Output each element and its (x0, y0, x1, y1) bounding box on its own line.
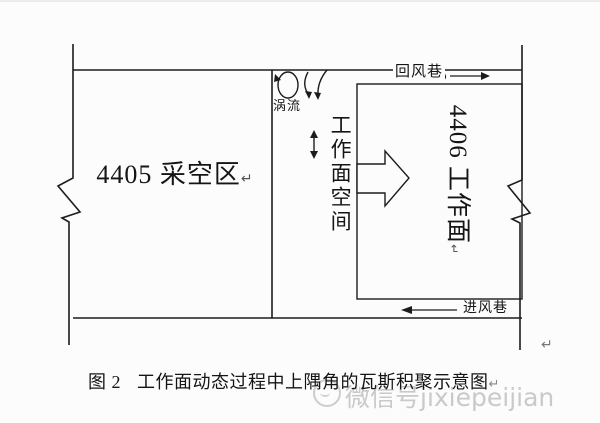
working-face-label: 4406 工作面↵ (443, 105, 471, 255)
vortex-label: 涡流 (273, 99, 301, 113)
face-space-label: 工作面空间 (328, 114, 351, 244)
paragraph-mark: ↵ (541, 338, 553, 353)
goaf-label-text: 4405 采空区 (96, 160, 241, 189)
streamline-left-arrowhead (305, 91, 312, 99)
return-airflow-arrowhead (481, 72, 490, 80)
right-boundary-line (508, 45, 530, 350)
vortex-ellipse (278, 72, 298, 98)
air-exchange-arrowhead-down (310, 151, 318, 159)
figure-caption-title: 工作面动态过程中上隅角的瓦斯积聚示意图 (137, 372, 489, 392)
goaf-label: 4405 采空区↵ (95, 161, 255, 190)
mine-layout-diagram (0, 2, 600, 423)
working-face-label-text: 4406 工作面 (444, 105, 471, 244)
air-exchange-arrowhead-up (310, 130, 318, 138)
streamline-right-arrowhead (314, 92, 321, 100)
figure-caption: 图 2工作面动态过程中上隅角的瓦斯积聚示意图↵ (88, 373, 500, 393)
return-airway-label: 回风巷 (393, 64, 445, 81)
paragraph-mark: ↵ (489, 377, 500, 392)
figure-caption-prefix: 图 2 (88, 372, 121, 392)
advance-direction-arrow (357, 151, 409, 206)
paragraph-mark: ↵ (241, 171, 254, 187)
intake-airway-label: 进风巷 (461, 301, 510, 316)
left-boundary-line (58, 44, 80, 345)
intake-airflow-arrowhead (401, 306, 412, 314)
paragraph-mark: ↵ (447, 244, 461, 255)
streamline-curve-right (318, 70, 327, 96)
figure-page: 4405 采空区↵ 涡流 工作面空间 4406 工作面↵ 回风巷 进风巷 ↵ 微… (0, 0, 600, 423)
